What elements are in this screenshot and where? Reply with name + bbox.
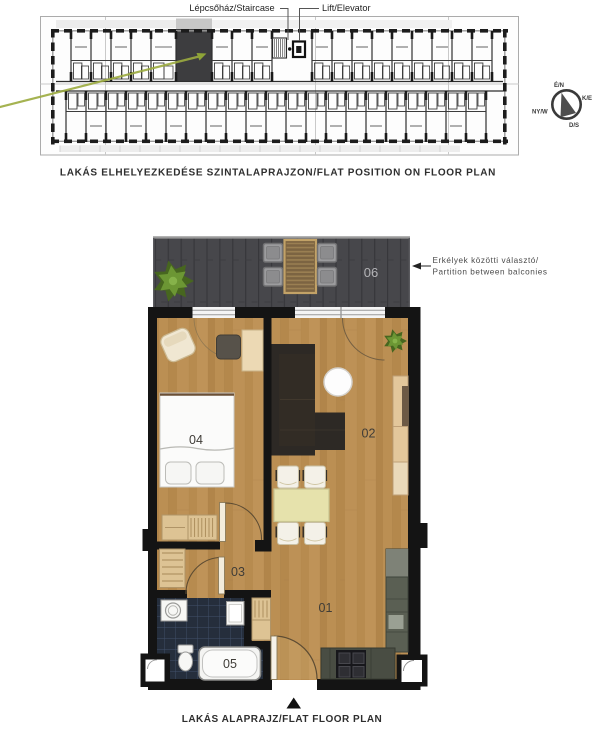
svg-text:D/S: D/S [569, 123, 579, 129]
svg-text:Partition between balconies: Partition between balconies [433, 268, 548, 277]
svg-text:05: 05 [223, 657, 237, 671]
svg-text:K/E: K/E [582, 96, 592, 102]
svg-text:03: 03 [231, 565, 245, 579]
svg-text:02: 02 [362, 427, 376, 441]
svg-text:Lépcsőház/Staircase: Lépcsőház/Staircase [189, 3, 274, 13]
svg-text:Erkélyek közötti választó/: Erkélyek közötti választó/ [433, 256, 539, 265]
svg-text:LAKÁS ELHELYEZKEDÉSE SZINTALAP: LAKÁS ELHELYEZKEDÉSE SZINTALAPRAJZON/FLA… [60, 166, 496, 179]
svg-text:06: 06 [364, 265, 378, 280]
svg-text:Lift/Elevator: Lift/Elevator [322, 3, 371, 13]
svg-text:04: 04 [189, 433, 203, 447]
svg-text:01: 01 [319, 601, 333, 615]
svg-text:LAKÁS ALAPRAJZ/FLAT FLOOR PLAN: LAKÁS ALAPRAJZ/FLAT FLOOR PLAN [182, 712, 383, 725]
svg-text:NY/W: NY/W [532, 110, 548, 116]
svg-text:É/N: É/N [554, 81, 564, 89]
